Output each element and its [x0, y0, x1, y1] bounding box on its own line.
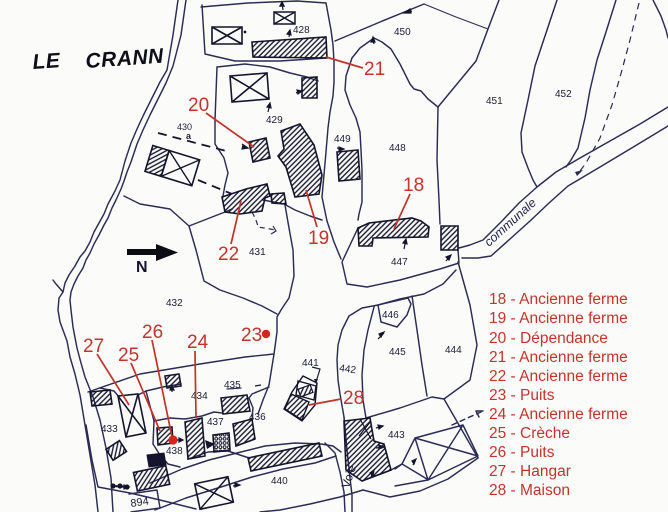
svg-text:443: 443 [388, 430, 405, 441]
svg-text:894: 894 [130, 496, 150, 510]
svg-text:449: 449 [334, 134, 351, 145]
svg-text:436: 436 [249, 412, 266, 423]
svg-text:19 - Ancienne ferme: 19 - Ancienne ferme [489, 310, 628, 327]
svg-text:435: 435 [224, 380, 241, 391]
svg-text:22 - Ancienne ferme: 22 - Ancienne ferme [489, 368, 628, 385]
svg-text:432: 432 [166, 298, 183, 309]
svg-text:24: 24 [187, 332, 209, 353]
svg-text:431: 431 [249, 247, 266, 258]
svg-text:26 - Puits: 26 - Puits [489, 444, 555, 461]
svg-text:444: 444 [445, 345, 462, 356]
svg-text:452: 452 [555, 89, 572, 100]
svg-text:26: 26 [142, 322, 163, 343]
svg-text:N: N [136, 259, 148, 276]
svg-text:448: 448 [389, 143, 406, 154]
svg-text:446: 446 [382, 310, 399, 321]
svg-text:27: 27 [83, 336, 104, 357]
svg-text:445: 445 [389, 347, 406, 358]
svg-text:440: 440 [271, 476, 288, 487]
svg-text:23: 23 [241, 325, 262, 346]
svg-text:438: 438 [166, 446, 183, 457]
svg-text:18: 18 [403, 175, 424, 196]
svg-text:437: 437 [207, 417, 224, 428]
svg-text:19: 19 [308, 228, 329, 249]
svg-text:428: 428 [293, 25, 310, 36]
svg-text:22: 22 [218, 244, 239, 265]
svg-text:21 - Ancienne ferme: 21 - Ancienne ferme [489, 349, 628, 366]
svg-text:433: 433 [101, 424, 118, 435]
svg-text:441: 441 [302, 358, 319, 369]
svg-text:28 - Maison: 28 - Maison [489, 482, 570, 499]
svg-text:447: 447 [391, 257, 408, 268]
svg-text:434: 434 [191, 391, 208, 402]
svg-text:25: 25 [118, 345, 139, 366]
svg-text:451: 451 [486, 96, 503, 107]
svg-text:20: 20 [188, 95, 209, 116]
svg-text:450: 450 [394, 27, 411, 38]
svg-text:21: 21 [364, 59, 385, 80]
svg-text:LE: LE [32, 49, 62, 74]
svg-text:429: 429 [266, 115, 283, 126]
svg-text:23 - Puits: 23 - Puits [489, 387, 555, 404]
svg-text:27 - Hangar: 27 - Hangar [489, 463, 571, 480]
svg-text:18 - Ancienne ferme: 18 - Ancienne ferme [489, 291, 628, 308]
svg-text:24 - Ancienne ferme: 24 - Ancienne ferme [489, 406, 628, 423]
svg-text:20 - Dépendance: 20 - Dépendance [489, 330, 608, 347]
svg-text:25 - Crèche: 25 - Crèche [489, 425, 570, 442]
svg-text:28: 28 [343, 388, 364, 409]
